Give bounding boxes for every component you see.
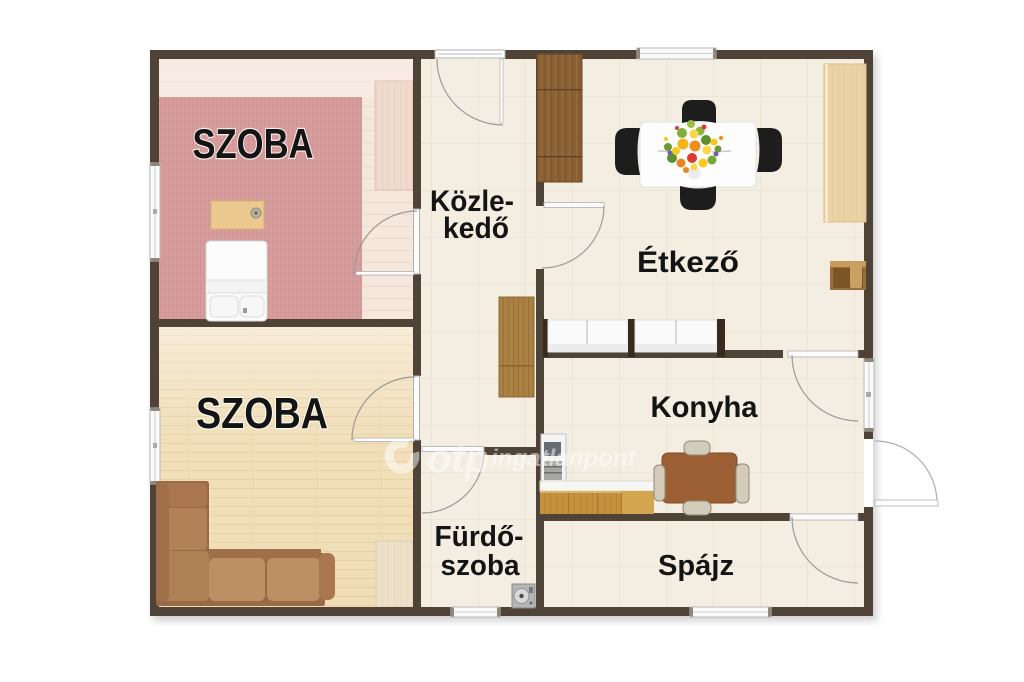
svg-text:Étkező: Étkező <box>637 245 739 279</box>
svg-text:szoba: szoba <box>441 550 521 582</box>
svg-text:Konyha: Konyha <box>651 391 758 424</box>
svg-text:SZOBA: SZOBA <box>196 389 328 438</box>
svg-text:ingatlanpont: ingatlanpont <box>491 445 637 472</box>
svg-text:Fürdő-: Fürdő- <box>435 521 524 553</box>
svg-text:kedő: kedő <box>443 212 509 245</box>
svg-text:Spájz: Spájz <box>658 550 734 582</box>
svg-text:SZOBA: SZOBA <box>193 120 314 167</box>
svg-text:otp: otp <box>427 437 489 481</box>
